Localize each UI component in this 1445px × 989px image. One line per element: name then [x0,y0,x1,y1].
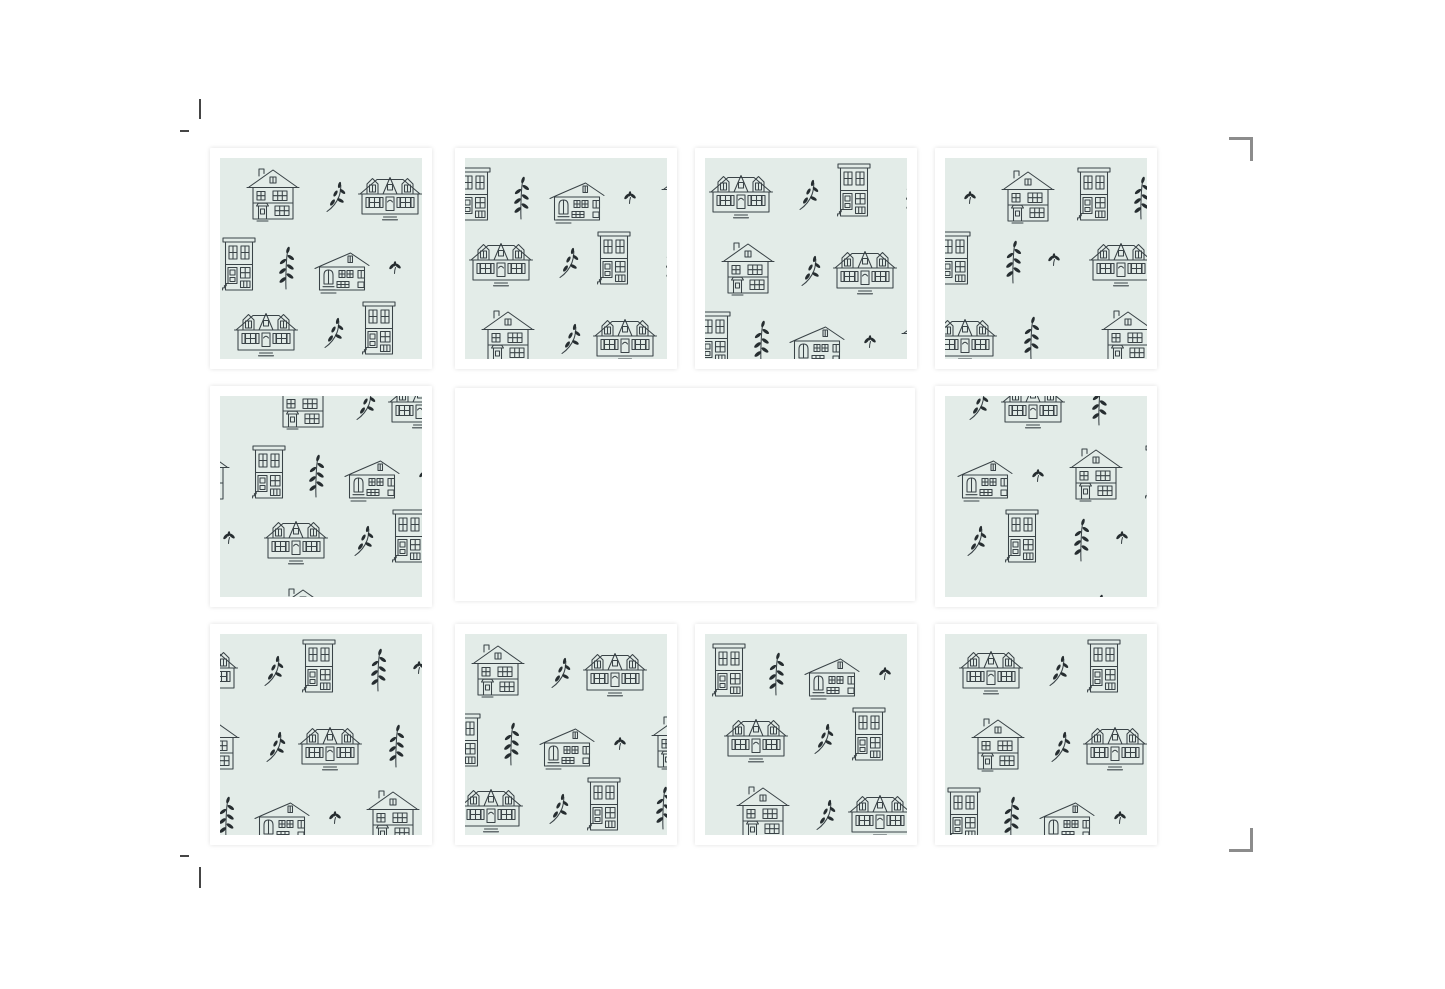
tile-r1c2[interactable] [455,148,677,369]
crop-mark-bottom-right-corner [1229,828,1253,852]
tile-r1c4[interactable] [935,148,1157,369]
print-sheet [0,0,1445,989]
house-pattern-artwork [705,158,907,359]
house-pattern-artwork [465,634,667,835]
crop-mark-top-left-horizontal [180,130,189,132]
house-pattern-artwork [220,158,422,359]
tile-r3c1[interactable] [210,624,432,845]
house-pattern-artwork [705,634,907,835]
tile-r2c4[interactable] [935,386,1157,607]
tile-r3c4[interactable] [935,624,1157,845]
house-pattern-artwork [945,396,1147,597]
house-pattern-artwork [465,158,667,359]
crop-mark-top-right-corner [1229,137,1253,161]
crop-mark-bottom-left-vertical [199,867,201,888]
house-pattern-artwork [220,634,422,835]
tile-r1c3[interactable] [695,148,917,369]
house-pattern-artwork [945,634,1147,835]
house-pattern-artwork [945,158,1147,359]
tile-r3c2[interactable] [455,624,677,845]
tile-r1c1[interactable] [210,148,432,369]
house-pattern-artwork [220,396,422,597]
tile-r2c1[interactable] [210,386,432,607]
tile-r3c3[interactable] [695,624,917,845]
tile-r2-center-blank[interactable] [455,388,915,601]
crop-mark-top-left-vertical [199,99,201,119]
crop-mark-bottom-left-horizontal [180,855,189,857]
